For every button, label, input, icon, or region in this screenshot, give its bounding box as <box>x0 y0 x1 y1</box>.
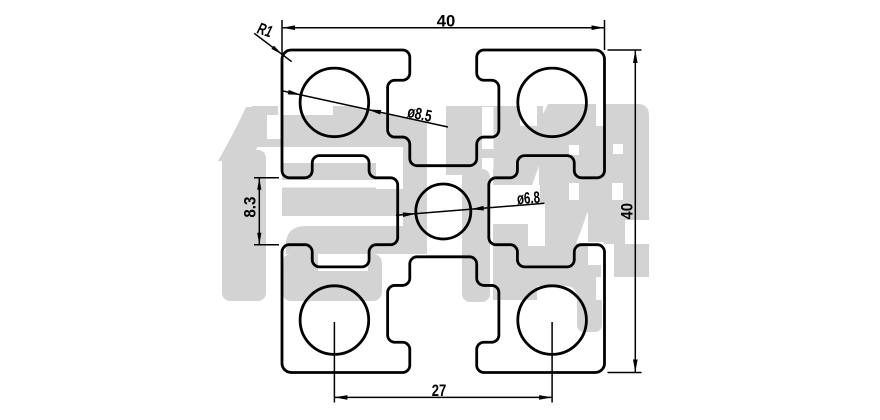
svg-text:40: 40 <box>618 203 636 220</box>
svg-text:8.3: 8.3 <box>242 197 260 218</box>
svg-text:40: 40 <box>437 13 456 31</box>
svg-text:R1: R1 <box>255 20 274 42</box>
svg-text:27: 27 <box>432 382 447 400</box>
svg-text:ø6.8: ø6.8 <box>516 189 540 209</box>
